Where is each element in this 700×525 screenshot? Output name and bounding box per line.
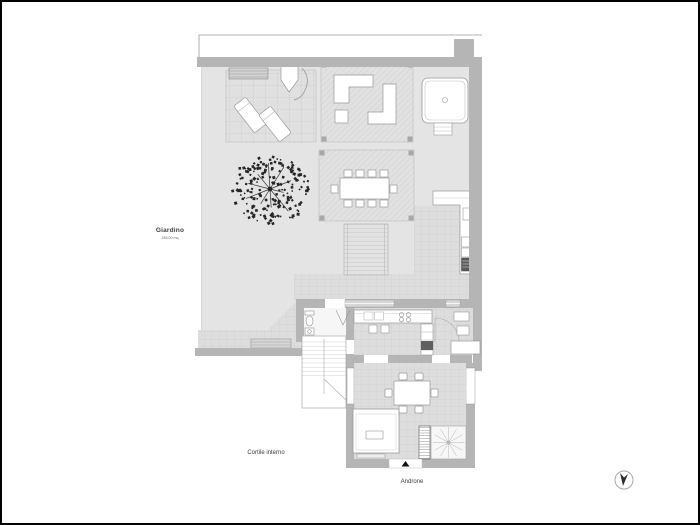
entrance-door	[389, 459, 422, 468]
patio-area	[226, 64, 316, 142]
window	[345, 300, 394, 307]
entrance-hall-label: Androne	[401, 479, 424, 485]
garden-bench	[251, 339, 291, 348]
console-table	[451, 341, 480, 354]
external-staircase	[302, 336, 346, 408]
hedge	[229, 68, 268, 79]
spiral-staircase	[431, 426, 466, 459]
garden-steps	[344, 224, 388, 275]
dining-table	[340, 178, 389, 199]
coffee-table	[335, 110, 348, 123]
floor-plan-drawing: Giardino 245.00 mq Cortile interno Andro…	[2, 2, 700, 525]
pergola-dining	[319, 150, 414, 221]
north-arrow-icon	[615, 471, 633, 489]
courtyard-label: Cortile interno	[247, 450, 285, 456]
jacuzzi-steps	[434, 123, 452, 135]
pergola-lounge	[321, 62, 413, 142]
toilet	[305, 311, 314, 315]
toilet-bowl	[306, 316, 313, 326]
floor-plan-sheet: Giardino 245.00 mq Cortile interno Andro…	[0, 0, 700, 525]
ladder	[419, 426, 430, 459]
table	[394, 381, 430, 405]
chimney	[454, 39, 474, 57]
garden-area-label: 245.00 mq	[162, 236, 179, 240]
daybed	[353, 409, 399, 458]
appliance-column	[421, 324, 433, 355]
garden-label: Giardino	[156, 227, 184, 234]
window	[446, 300, 460, 307]
